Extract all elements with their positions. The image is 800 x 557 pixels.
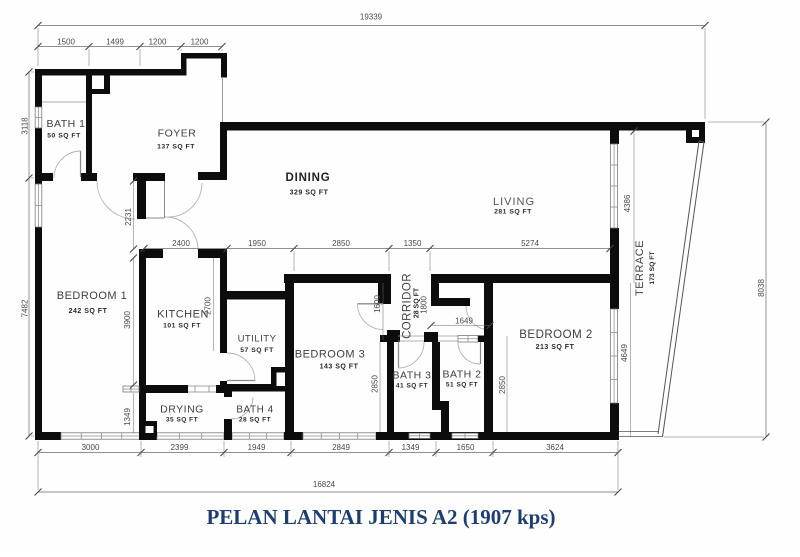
svg-text:5274: 5274 [521, 239, 539, 248]
svg-text:BATH 4: BATH 4 [236, 405, 273, 416]
svg-text:BEDROOM 3: BEDROOM 3 [295, 349, 366, 361]
svg-text:1200: 1200 [149, 38, 167, 47]
svg-text:BEDROOM 2: BEDROOM 2 [519, 329, 593, 341]
svg-text:1349: 1349 [123, 408, 132, 426]
svg-text:57 SQ FT: 57 SQ FT [240, 347, 274, 354]
svg-text:CORRIDOR: CORRIDOR [402, 273, 414, 339]
svg-text:1200: 1200 [191, 38, 209, 47]
svg-text:137 SQ FT: 137 SQ FT [157, 144, 195, 151]
svg-text:50 SQ FT: 50 SQ FT [47, 133, 81, 140]
svg-text:51 SQ FT: 51 SQ FT [446, 382, 478, 389]
svg-text:16824: 16824 [313, 480, 336, 489]
svg-text:UTILITY: UTILITY [238, 334, 277, 345]
svg-text:8038: 8038 [757, 279, 766, 297]
svg-text:3118: 3118 [21, 117, 30, 135]
svg-text:BATH 1: BATH 1 [47, 118, 86, 130]
svg-text:1600: 1600 [373, 295, 382, 313]
svg-text:DINING: DINING [285, 172, 330, 184]
svg-text:FOYER: FOYER [158, 128, 197, 140]
svg-text:2231: 2231 [124, 208, 133, 226]
svg-text:LIVING: LIVING [493, 196, 535, 208]
svg-text:2850: 2850 [371, 375, 380, 393]
svg-text:329 SQ FT: 329 SQ FT [290, 190, 329, 197]
svg-text:3900: 3900 [123, 311, 132, 329]
svg-text:4386: 4386 [623, 194, 632, 212]
svg-text:1349: 1349 [402, 443, 420, 452]
svg-text:2850: 2850 [498, 376, 507, 394]
svg-text:28 SQ FT: 28 SQ FT [239, 417, 271, 424]
svg-text:19339: 19339 [360, 13, 383, 22]
svg-text:KITCHEN: KITCHEN [157, 309, 209, 321]
svg-text:7482: 7482 [21, 299, 30, 317]
svg-text:TERRACE: TERRACE [634, 240, 646, 296]
svg-text:BEDROOM 1: BEDROOM 1 [57, 290, 128, 302]
svg-text:3624: 3624 [546, 443, 564, 452]
svg-text:2849: 2849 [332, 443, 350, 452]
svg-text:1949: 1949 [248, 443, 266, 452]
svg-text:28 SQ FT: 28 SQ FT [414, 287, 421, 318]
svg-text:4649: 4649 [620, 344, 629, 362]
svg-text:242 SQ FT: 242 SQ FT [69, 308, 108, 315]
svg-text:1950: 1950 [248, 239, 266, 248]
svg-text:BATH 3: BATH 3 [393, 370, 432, 382]
svg-text:1350: 1350 [404, 239, 422, 248]
svg-text:143 SQ FT: 143 SQ FT [320, 364, 359, 371]
svg-text:1500: 1500 [57, 38, 75, 47]
svg-text:1800: 1800 [420, 296, 429, 314]
svg-text:101 SQ FT: 101 SQ FT [163, 323, 201, 330]
svg-text:35 SQ FT: 35 SQ FT [166, 417, 198, 424]
svg-text:2399: 2399 [171, 443, 189, 452]
svg-text:DRYING: DRYING [160, 404, 204, 416]
svg-text:2400: 2400 [172, 239, 190, 248]
svg-text:213 SQ FT: 213 SQ FT [536, 344, 575, 351]
svg-text:2850: 2850 [332, 239, 350, 248]
svg-text:1649: 1649 [455, 317, 473, 326]
svg-text:41 SQ FT: 41 SQ FT [396, 383, 428, 390]
svg-text:BATH 2: BATH 2 [443, 369, 482, 381]
svg-text:3000: 3000 [82, 443, 100, 452]
svg-text:1499: 1499 [106, 38, 124, 47]
svg-text:173 SQ FT: 173 SQ FT [649, 251, 656, 285]
svg-text:281 SQ FT: 281 SQ FT [494, 209, 532, 216]
svg-text:1650: 1650 [457, 443, 475, 452]
svg-text:PELAN LANTAI JENIS A2 (1907 kp: PELAN LANTAI JENIS A2 (1907 kps) [206, 505, 555, 529]
